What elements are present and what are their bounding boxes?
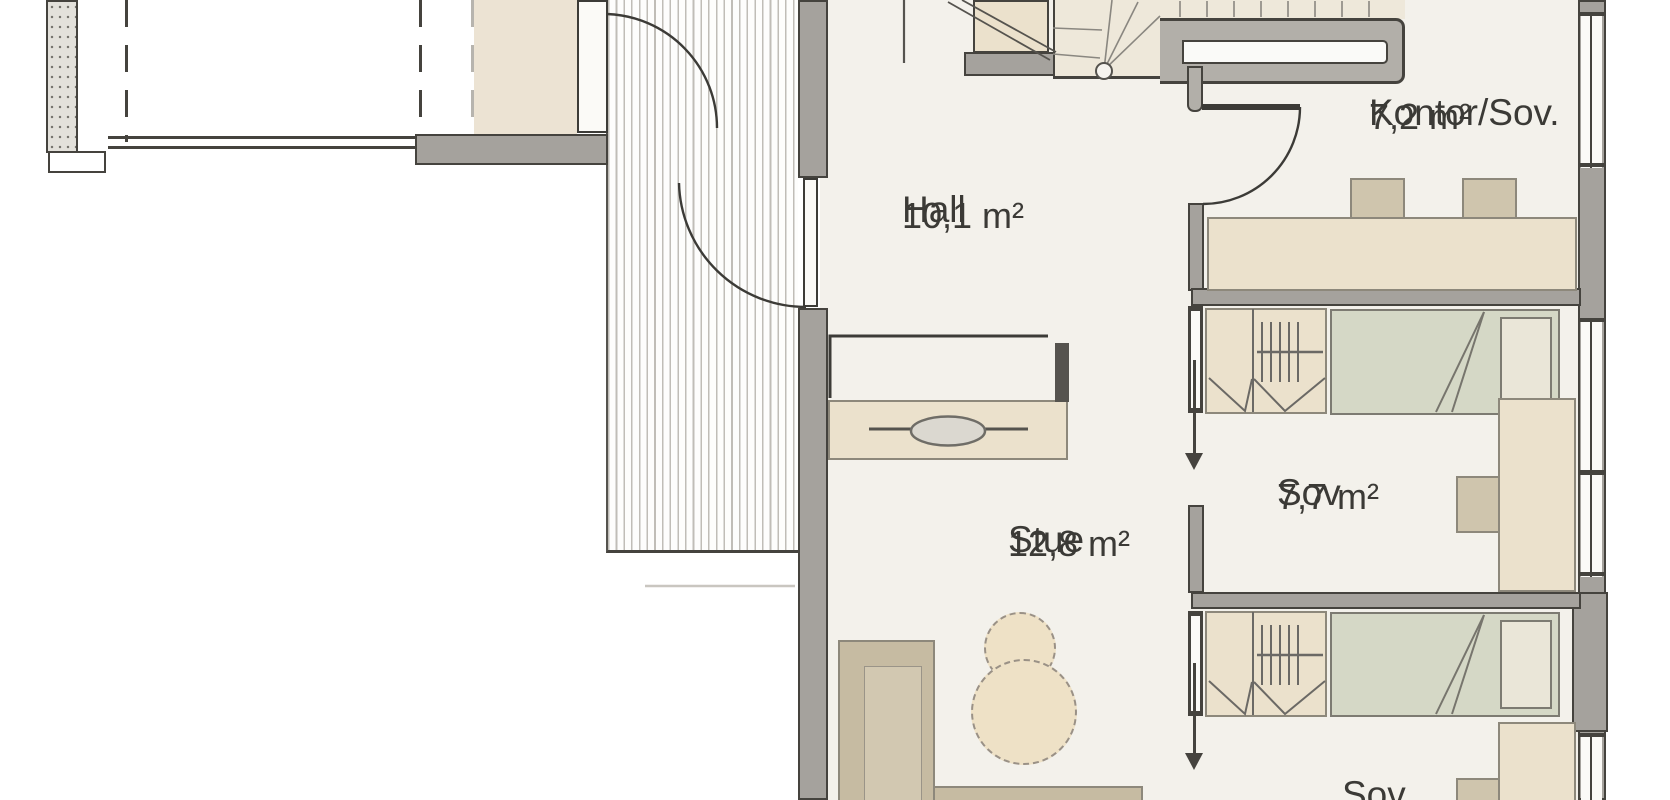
floor-plan: Hall 10,1 m² Kontor/Sov. 7,2 m² Sov 7,7 …	[0, 0, 1670, 800]
room-name: Sov	[1342, 776, 1406, 800]
window	[1581, 12, 1602, 168]
sov2-door-arrow-head	[1185, 753, 1203, 770]
balcony-side-wall	[415, 134, 608, 165]
overhang-dashed-line	[125, 0, 128, 142]
stairs-upper-flight	[1163, 0, 1405, 19]
balcony-slab-edge	[48, 151, 106, 173]
bedroom-wall-segment	[1188, 505, 1204, 593]
exterior-wall-left-lower	[798, 308, 828, 800]
room-label-stue: Stue 12,8 m²	[1008, 521, 1130, 562]
stairwell-railing-channel	[1182, 40, 1388, 64]
front-door-leaf	[803, 178, 818, 307]
balcony-door-leaf	[577, 0, 608, 133]
room-name: Stue	[1008, 521, 1084, 558]
hall-vanity-counter	[828, 400, 1068, 460]
sov1-bed-pillow	[1500, 317, 1552, 407]
kontor-chair	[1462, 178, 1517, 219]
window	[1581, 318, 1602, 577]
sov1-wardrobe	[1205, 308, 1327, 414]
sov1-desk	[1498, 398, 1576, 592]
kontor-desk	[1207, 217, 1577, 291]
overhang-dashed-line	[419, 0, 422, 136]
stue-sofa-arm	[933, 786, 1143, 800]
window-pier	[1572, 592, 1608, 732]
sov2-door-arrow	[1193, 663, 1196, 755]
room-label-kontor: Kontor/Sov. 7,2 m²	[1369, 94, 1471, 135]
balcony-covered-area	[474, 0, 577, 140]
stairs-winder	[1053, 0, 1163, 79]
balcony-concrete-wall	[46, 0, 78, 153]
sov1-door-arrow-head	[1185, 453, 1203, 470]
railing-end-post	[1187, 66, 1203, 112]
exterior-wall-left-upper	[798, 0, 828, 178]
room-name: Sov	[1277, 474, 1341, 511]
room-name: Kontor/Sov.	[1369, 94, 1560, 131]
sov1-chair	[1456, 476, 1500, 533]
room-label-sov1: Sov 7,7 m²	[1277, 474, 1379, 515]
stue-sofa-seat	[864, 666, 922, 800]
stue-round-table-large	[971, 659, 1077, 765]
bedroom-wall-segment	[1188, 203, 1204, 291]
balcony-railing	[108, 136, 418, 149]
sov2-wardrobe	[1205, 611, 1327, 717]
hall-closet	[973, 0, 1049, 53]
terrace-deck	[606, 0, 798, 553]
sov1-door-arrow	[1193, 360, 1196, 455]
sov2-desk	[1498, 722, 1576, 800]
sov2-chair	[1456, 778, 1500, 800]
window	[1581, 733, 1602, 800]
sov2-bed-pillow	[1500, 620, 1552, 709]
room-label-hall: Hall 10,1 m²	[902, 191, 1024, 234]
kontor-chair	[1350, 178, 1405, 219]
room-name: Hall	[902, 191, 966, 228]
wall-sov1-sov2	[1191, 592, 1581, 609]
